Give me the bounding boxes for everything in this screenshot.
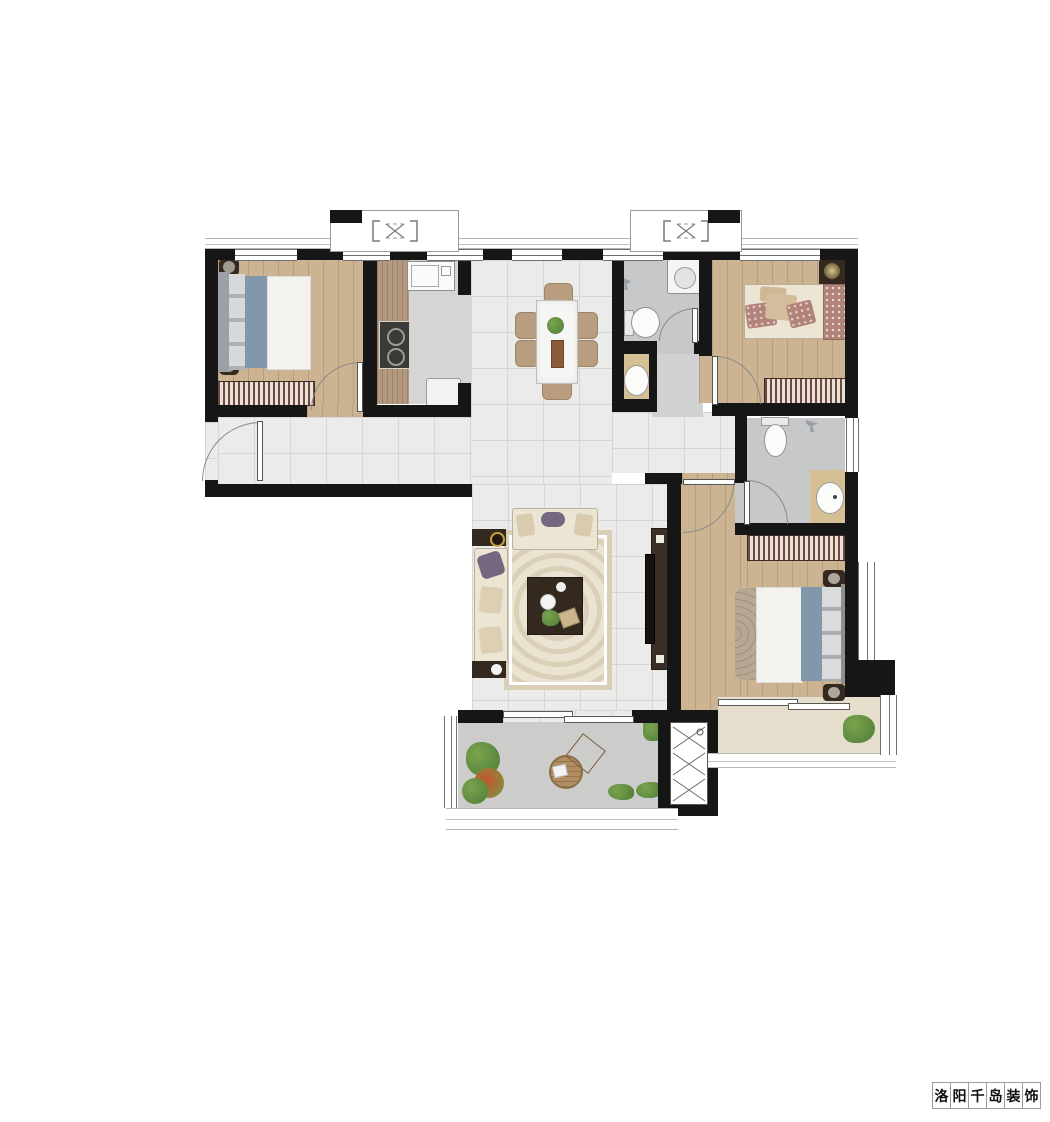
toilet-bowl bbox=[764, 424, 787, 457]
lamp-icon bbox=[828, 687, 840, 698]
flue-marker-icon bbox=[370, 219, 420, 243]
wall bbox=[612, 341, 657, 354]
tray-icon bbox=[558, 607, 580, 628]
watermark-char: 洛 bbox=[932, 1082, 951, 1109]
decor-icon bbox=[656, 535, 664, 543]
bed-throw bbox=[735, 588, 757, 680]
door-leaf bbox=[692, 308, 698, 343]
wall bbox=[458, 710, 503, 723]
balcony-railing bbox=[446, 808, 678, 830]
sliding-door-panel bbox=[718, 699, 798, 706]
duct-shaft bbox=[670, 722, 708, 805]
wall bbox=[205, 405, 307, 417]
decor-icon bbox=[491, 664, 502, 675]
wall bbox=[205, 484, 472, 497]
bed-runner bbox=[245, 276, 267, 368]
watermark-char: 岛 bbox=[986, 1082, 1005, 1109]
wall bbox=[562, 248, 603, 260]
sliding-door-panel bbox=[564, 716, 634, 723]
balcony-plant bbox=[462, 778, 488, 804]
window bbox=[235, 249, 297, 261]
bed-runner bbox=[801, 587, 822, 681]
stove-cooktop bbox=[379, 321, 410, 369]
wardrobe bbox=[217, 381, 315, 406]
window bbox=[740, 249, 820, 261]
bed-pillows bbox=[822, 587, 841, 681]
sliding-door-panel bbox=[503, 711, 573, 718]
wall bbox=[458, 383, 471, 417]
sofa-chaise bbox=[474, 548, 508, 663]
pillow bbox=[479, 586, 504, 614]
wall bbox=[735, 408, 747, 483]
lobby-floor bbox=[652, 354, 703, 417]
lamp-glow-icon bbox=[824, 263, 840, 279]
burner-icon bbox=[387, 348, 405, 366]
decor-icon bbox=[490, 532, 505, 547]
wash-basin bbox=[816, 482, 844, 514]
watermark-char: 千 bbox=[968, 1082, 987, 1109]
kitchen-sink bbox=[407, 261, 455, 291]
dining-chair bbox=[515, 340, 537, 367]
wall bbox=[658, 722, 670, 810]
table-plant-icon bbox=[547, 317, 564, 334]
door-threshold bbox=[657, 341, 694, 354]
watermark-char: 阳 bbox=[950, 1082, 969, 1109]
pillow bbox=[479, 626, 504, 654]
wall bbox=[667, 473, 681, 710]
bed-duvet bbox=[756, 587, 803, 683]
wall bbox=[699, 250, 712, 356]
shaft-hatch-icon bbox=[671, 723, 707, 804]
wall bbox=[708, 210, 740, 223]
wardrobe bbox=[747, 535, 849, 561]
wall bbox=[363, 405, 471, 417]
bed-double bbox=[218, 270, 330, 374]
dining-chair bbox=[576, 340, 598, 367]
pillow bbox=[574, 513, 594, 537]
decor-icon bbox=[656, 655, 664, 663]
pillow bbox=[516, 513, 536, 537]
planter-bush bbox=[608, 784, 634, 800]
bay-window-sill bbox=[700, 753, 896, 768]
bay-window-side bbox=[880, 695, 897, 755]
book-icon bbox=[552, 764, 568, 779]
sliding-door-panel bbox=[788, 703, 850, 710]
wall bbox=[845, 660, 895, 697]
toilet-bowl bbox=[631, 307, 660, 338]
table-runner bbox=[551, 340, 564, 368]
wash-basin bbox=[624, 365, 649, 396]
window bbox=[846, 418, 859, 472]
exterior-sill-line bbox=[205, 238, 858, 249]
dining-chair bbox=[515, 312, 537, 339]
faucet-icon bbox=[441, 266, 451, 276]
wall bbox=[205, 248, 218, 422]
wall bbox=[330, 210, 362, 223]
pillow bbox=[541, 512, 565, 527]
wall bbox=[612, 399, 657, 412]
door-leaf bbox=[683, 479, 735, 485]
watermark-char: 装 bbox=[1004, 1082, 1023, 1109]
bedside-lamp-table bbox=[819, 258, 845, 284]
door-threshold bbox=[458, 295, 471, 383]
hallway-floor-right bbox=[612, 412, 735, 473]
window bbox=[512, 249, 562, 261]
sofa-main bbox=[512, 508, 598, 550]
door-leaf bbox=[744, 481, 750, 525]
bay-window bbox=[858, 562, 875, 660]
side-table bbox=[472, 529, 506, 546]
tv-screen bbox=[645, 554, 655, 644]
side-table bbox=[472, 661, 506, 678]
washing-machine bbox=[667, 259, 703, 294]
bed-double bbox=[735, 584, 845, 684]
wardrobe bbox=[764, 378, 846, 404]
lamp-icon bbox=[828, 573, 840, 584]
bed-throw bbox=[309, 274, 330, 370]
burner-icon bbox=[387, 328, 405, 346]
door-leaf bbox=[712, 356, 718, 405]
dining-chair bbox=[576, 312, 598, 339]
company-watermark: 洛 阳 千 岛 装 饰 bbox=[933, 1082, 1041, 1109]
sink-basin bbox=[411, 265, 439, 287]
balcony-railing bbox=[444, 716, 457, 808]
wall bbox=[735, 523, 857, 535]
pillow bbox=[476, 550, 506, 580]
watermark-char: 饰 bbox=[1022, 1082, 1041, 1109]
coffee-table bbox=[527, 577, 583, 635]
drain-icon bbox=[833, 495, 837, 499]
wall bbox=[845, 535, 858, 662]
door-threshold bbox=[699, 356, 712, 403]
entry-door-leaf bbox=[257, 421, 263, 481]
flue-marker-icon bbox=[661, 219, 711, 243]
wall bbox=[845, 248, 858, 418]
plate-icon bbox=[540, 594, 556, 610]
wall bbox=[712, 403, 857, 416]
wall bbox=[363, 250, 377, 417]
cup-icon bbox=[556, 582, 566, 592]
bed-duvet bbox=[267, 276, 311, 370]
nightstand bbox=[823, 684, 845, 701]
wall bbox=[612, 250, 624, 412]
floor-plan: 洛 阳 千 岛 装 饰 bbox=[0, 0, 1050, 1122]
refrigerator bbox=[426, 378, 461, 408]
bed-pillows bbox=[229, 274, 245, 370]
wall bbox=[483, 248, 512, 260]
washer-drum-icon bbox=[674, 267, 696, 289]
door-leaf bbox=[357, 362, 363, 412]
